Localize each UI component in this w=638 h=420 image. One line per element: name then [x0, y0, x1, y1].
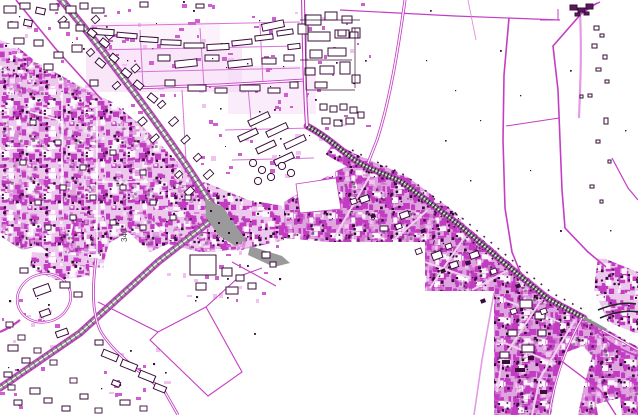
svg-text:340: 340	[120, 228, 129, 242]
